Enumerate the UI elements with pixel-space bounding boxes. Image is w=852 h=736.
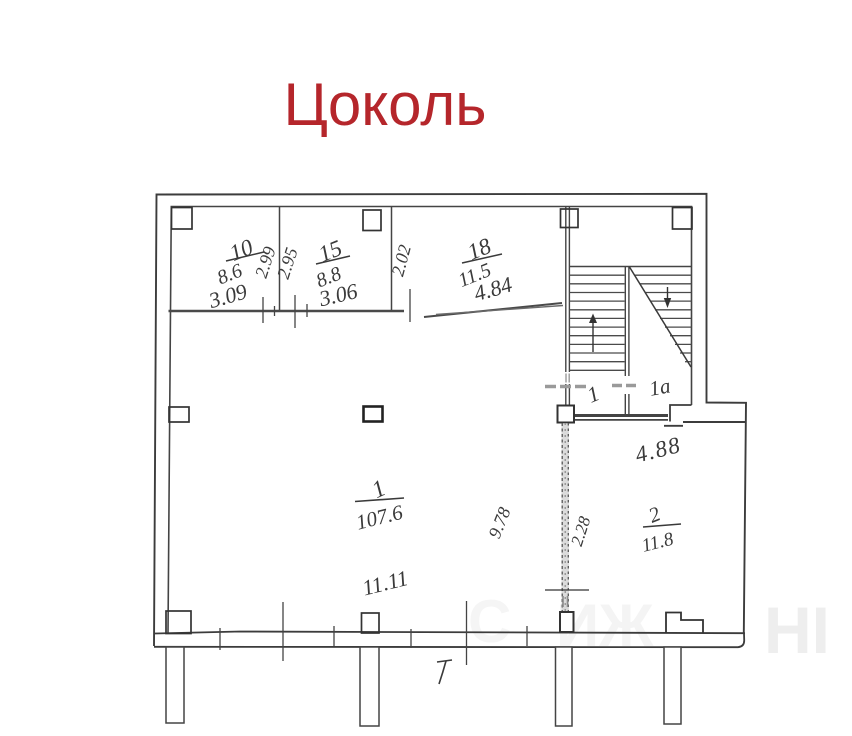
svg-text:10: 10 bbox=[226, 234, 257, 266]
svg-text:9.78: 9.78 bbox=[484, 504, 514, 541]
svg-text:11.8: 11.8 bbox=[640, 529, 676, 557]
svg-text:3.09: 3.09 bbox=[205, 278, 250, 313]
svg-text:18: 18 bbox=[464, 233, 495, 265]
svg-text:11.11: 11.11 bbox=[360, 565, 411, 600]
svg-text:15: 15 bbox=[315, 235, 346, 267]
svg-text:2.28: 2.28 bbox=[567, 514, 594, 549]
svg-text:4.88: 4.88 bbox=[633, 432, 684, 467]
svg-text:1: 1 bbox=[583, 380, 603, 407]
svg-text:2: 2 bbox=[645, 501, 664, 527]
svg-text:107.6: 107.6 bbox=[353, 500, 405, 535]
svg-text:1а: 1а bbox=[647, 373, 672, 400]
svg-text:Цоколь: Цоколь bbox=[284, 71, 487, 138]
svg-text:С: С bbox=[468, 588, 511, 655]
svg-text:НІ: НІ bbox=[764, 593, 830, 667]
